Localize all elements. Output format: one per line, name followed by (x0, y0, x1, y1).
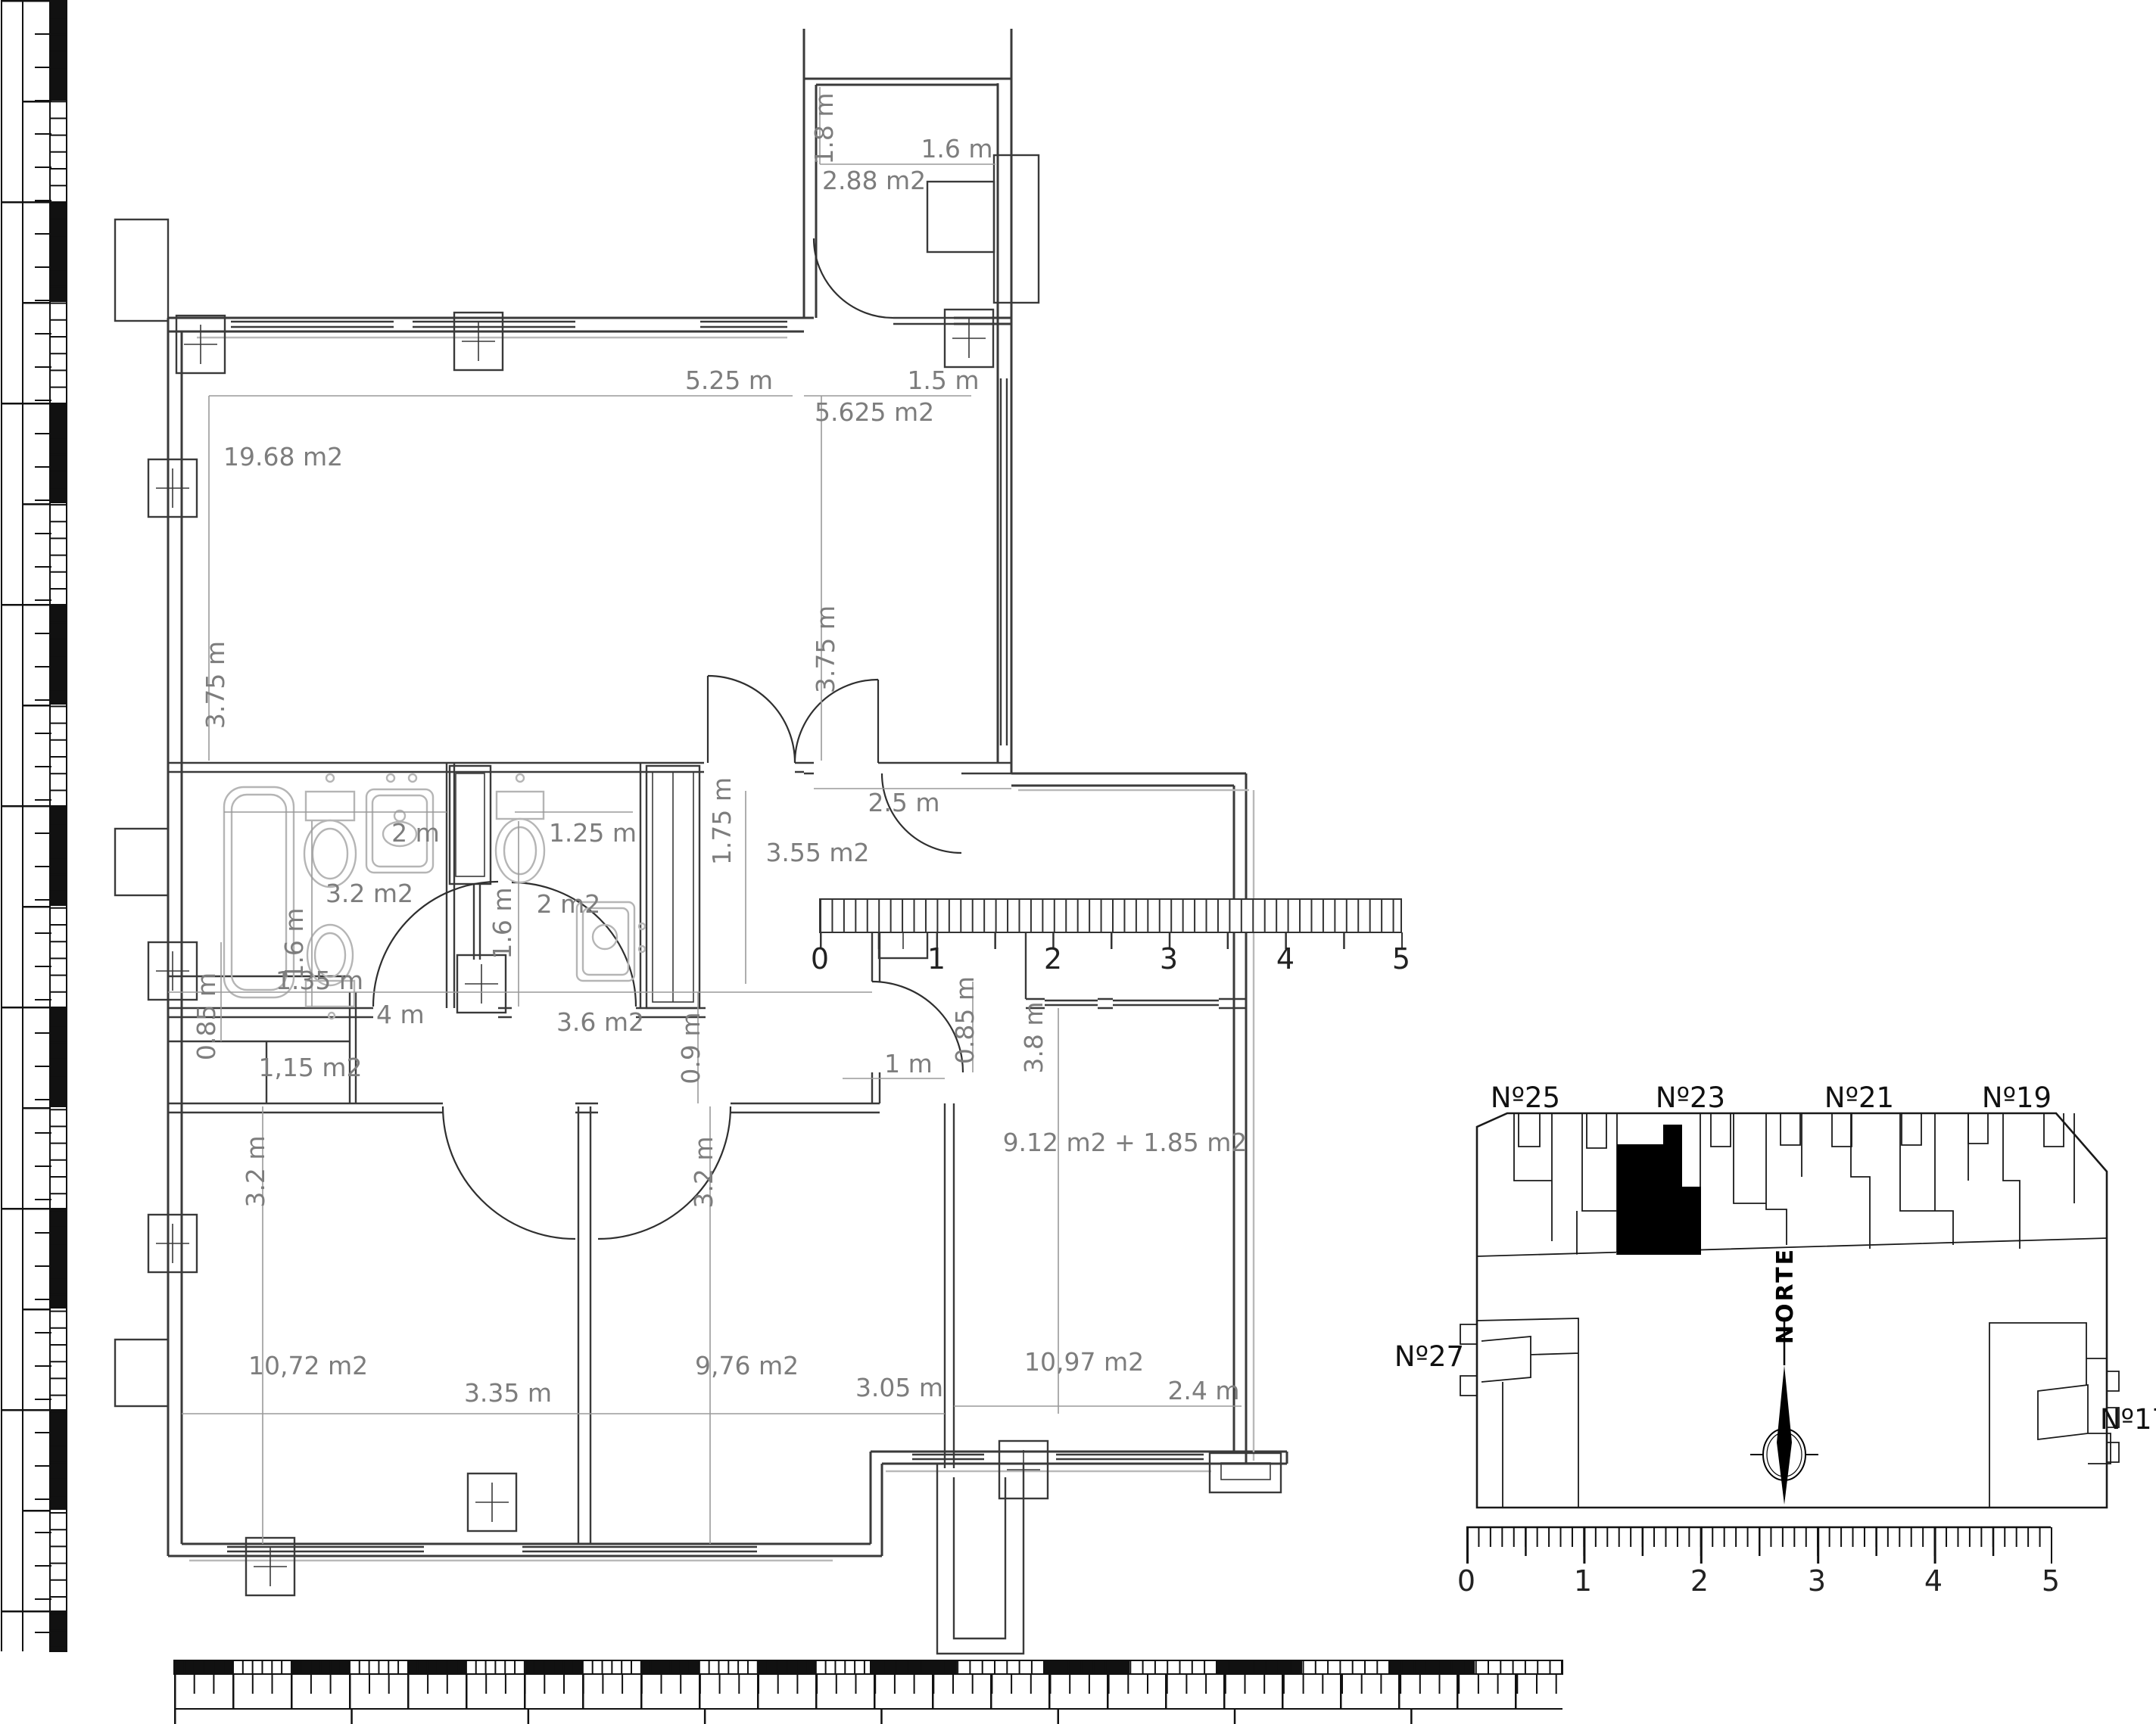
plan-ruler-1: 1 (927, 942, 946, 976)
wardrobe (646, 766, 699, 1008)
plan-ruler: 0 1 2 3 4 5 (811, 899, 1410, 976)
label-bedroom-middle-width: 3.05 m (855, 1373, 943, 1402)
label-dining-width: 2.4 m (1167, 1376, 1239, 1405)
pilaster (115, 1340, 168, 1406)
label-terrace-area: 2.88 m2 (822, 166, 926, 195)
label-closet-area: 1,15 m2 (258, 1053, 362, 1082)
label-passage-depth: 0.85 m (950, 976, 980, 1064)
label-corridor-width: 4 m (376, 1000, 425, 1029)
label-hall-height: 1.75 m (707, 777, 737, 865)
label-corridor-height: 0.9 m (676, 1012, 706, 1084)
terrace-annex (994, 155, 1039, 303)
label-living-width: 5.25 m (685, 366, 773, 395)
site-plan: Nº25 Nº23 Nº21 Nº19 Nº17 Nº27 NORTE 0 1 … (1394, 1081, 2156, 1598)
column-marker (468, 1473, 516, 1531)
terrace-closet (927, 182, 994, 252)
house-number-25: Nº25 (1491, 1081, 1560, 1114)
compass-needle (1777, 1365, 1792, 1505)
label-bedroom-left-area: 10,72 m2 (248, 1351, 368, 1380)
label-dining-height: 3.8 m (1019, 1001, 1048, 1073)
site-ruler-3: 3 (1808, 1564, 1826, 1598)
label-lobby-height: 0.85 m (192, 972, 221, 1060)
label-bath-small-height: 1.6 m (488, 887, 517, 959)
house-number-21: Nº21 (1824, 1081, 1894, 1114)
label-dining-total: 10,97 m2 (1024, 1347, 1144, 1377)
scale-bar-left (2, 0, 67, 1651)
plan-ruler-5: 5 (1392, 942, 1410, 976)
building-n27 (1460, 1318, 1578, 1508)
column-marker (148, 1215, 197, 1272)
floor-plan: 1.8 m 1.6 m 2.88 m2 19.68 m2 5.25 m 3.75… (115, 29, 1410, 1654)
label-dining-areas: 9.12 m2 + 1.85 m2 (1003, 1128, 1248, 1157)
label-terrace-height: 1.8 m (809, 92, 839, 164)
house-divisions (1477, 1113, 2107, 1256)
site-ruler-0: 0 (1457, 1564, 1475, 1598)
label-bath-small-width: 1.25 m (549, 818, 637, 848)
label-bedroom-tr-area: 5.625 m2 (815, 397, 934, 427)
duct-shaft (450, 766, 491, 884)
architectural-drawing-page: 1.8 m 1.6 m 2.88 m2 19.68 m2 5.25 m 3.75… (0, 0, 2156, 1724)
dimension-lines (168, 87, 1242, 1544)
column-marker (148, 459, 197, 517)
scale-bar-bottom (174, 1660, 1562, 1716)
plan-ruler-4: 4 (1276, 942, 1295, 976)
plan-ruler-3: 3 (1160, 942, 1178, 976)
label-bath-small-area: 2 m2 (537, 889, 601, 919)
column-marker (148, 942, 197, 1000)
column-marker (457, 955, 506, 1013)
label-bedroom-left-width: 3.35 m (464, 1378, 552, 1408)
label-bedroom-tr-width: 1.5 m (907, 366, 979, 395)
label-bedroom-left-height: 3.2 m (241, 1135, 270, 1207)
label-terrace-width: 1.6 m (921, 134, 992, 163)
door-arcs (373, 238, 963, 1239)
site-ruler-5: 5 (2042, 1564, 2060, 1598)
label-corridor-area: 3.6 m2 (556, 1007, 644, 1037)
label-living-height: 3.75 m (201, 641, 230, 729)
label-living-area: 19.68 m2 (223, 442, 343, 471)
label-bath-main-width: 2 m (391, 818, 440, 848)
house-number-27: Nº27 (1394, 1340, 1464, 1373)
label-entry-width: 2.5 m (868, 788, 939, 817)
house-number-19: Nº19 (1982, 1081, 2052, 1114)
label-bath-main-area: 3.2 m2 (326, 879, 413, 908)
bottom-shaft (937, 1464, 1023, 1654)
north-compass: NORTE (1750, 1247, 1818, 1505)
house-number-17: Nº17 (2100, 1403, 2156, 1436)
plan-ruler-0: 0 (811, 942, 829, 976)
site-ruler-4: 4 (1924, 1564, 1943, 1598)
label-passage-width: 1 m (884, 1049, 933, 1078)
label-bedroom-middle-height: 3.2 m (689, 1136, 718, 1208)
column-marker (176, 316, 225, 373)
pilaster (115, 829, 168, 895)
plan-ruler-2: 2 (1044, 942, 1062, 976)
site-ruler: 0 1 2 3 4 5 (1457, 1527, 2060, 1598)
roof-stubs (1519, 1113, 2064, 1148)
label-bedroom-tr-height: 3.75 m (811, 605, 840, 693)
label-hall-area: 3.55 m2 (765, 838, 869, 867)
drawing-canvas: 1.8 m 1.6 m 2.88 m2 19.68 m2 5.25 m 3.75… (0, 0, 2156, 1724)
site-ruler-2: 2 (1690, 1564, 1709, 1598)
label-lobby-width: 1.35 m (276, 966, 363, 995)
entry-stub (115, 219, 168, 321)
site-ruler-1: 1 (1574, 1564, 1592, 1598)
toilet-icon (496, 774, 544, 882)
north-label: NORTE (1772, 1247, 1799, 1344)
label-bedroom-middle-area: 9,76 m2 (695, 1351, 799, 1380)
house-number-23: Nº23 (1656, 1081, 1725, 1114)
highlighted-unit (1617, 1125, 1701, 1255)
